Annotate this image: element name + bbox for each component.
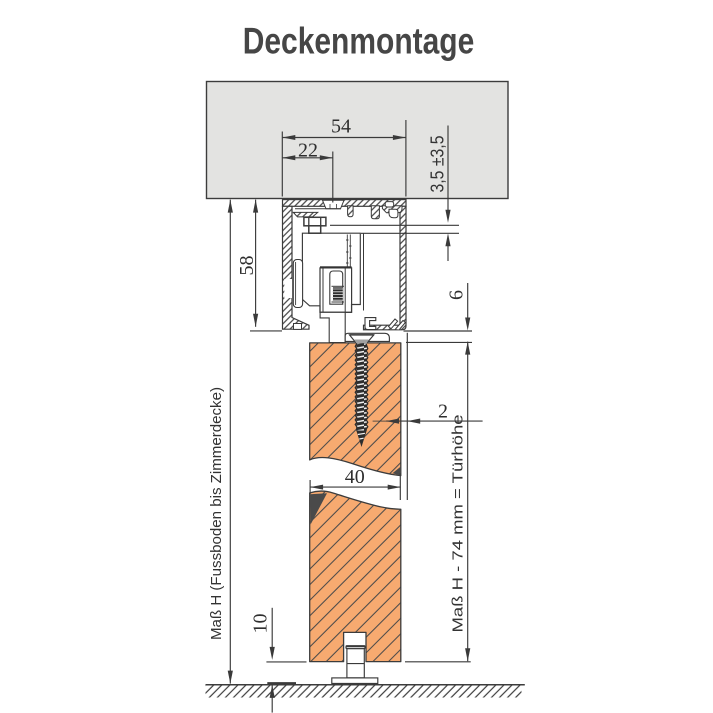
svg-text:40: 40	[345, 466, 365, 488]
svg-text:10: 10	[250, 614, 272, 634]
svg-text:Maß H (Fussboden bis Zimmerdec: Maß H (Fussboden bis Zimmerdecke)	[208, 387, 225, 640]
svg-text:58: 58	[236, 256, 258, 276]
svg-text:6: 6	[446, 290, 468, 300]
svg-text:2: 2	[438, 401, 448, 423]
svg-text:54: 54	[331, 116, 351, 138]
svg-text:Deckenmontage: Deckenmontage	[243, 21, 475, 62]
svg-text:3,5 ±3,5: 3,5 ±3,5	[428, 136, 448, 193]
svg-text:Maß H - 74 mm = Türhöhe: Maß H - 74 mm = Türhöhe	[450, 415, 467, 633]
